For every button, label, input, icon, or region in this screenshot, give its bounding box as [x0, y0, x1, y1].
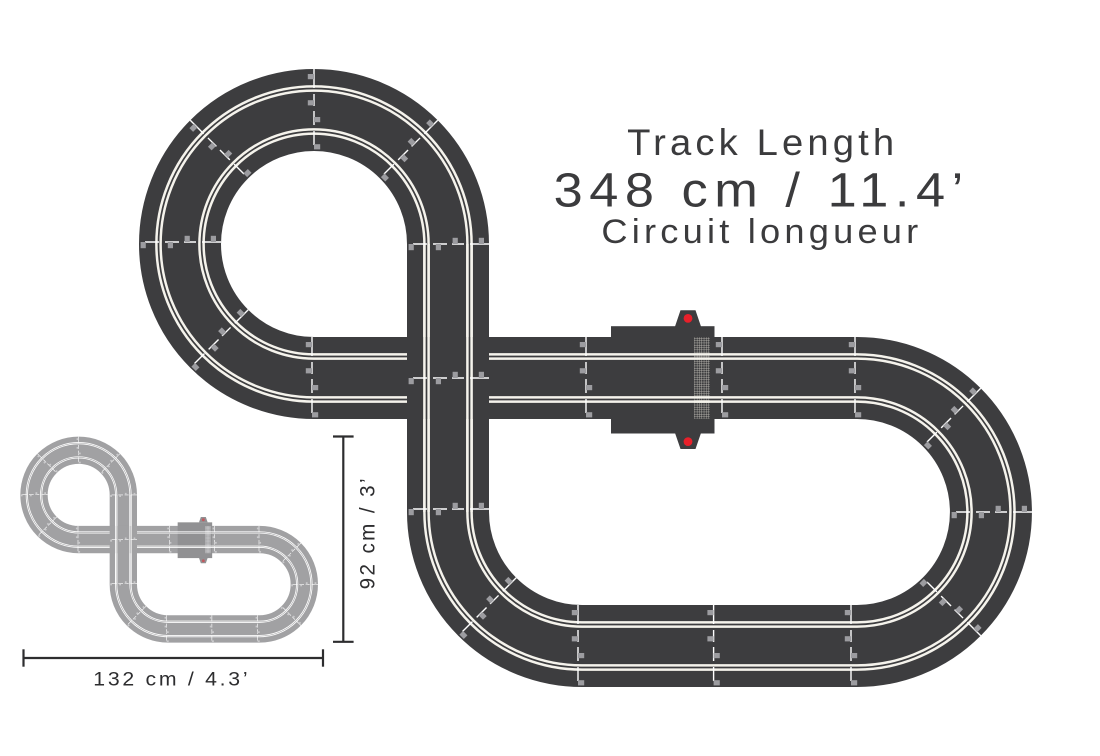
svg-text:Track Length: Track Length: [627, 122, 898, 163]
svg-text:132 cm / 4.3’: 132 cm / 4.3’: [93, 669, 250, 690]
svg-text:92 cm / 3’: 92 cm / 3’: [356, 476, 379, 589]
svg-text:348 cm / 11.4’: 348 cm / 11.4’: [554, 163, 970, 217]
svg-text:Circuit longueur: Circuit longueur: [601, 213, 922, 251]
